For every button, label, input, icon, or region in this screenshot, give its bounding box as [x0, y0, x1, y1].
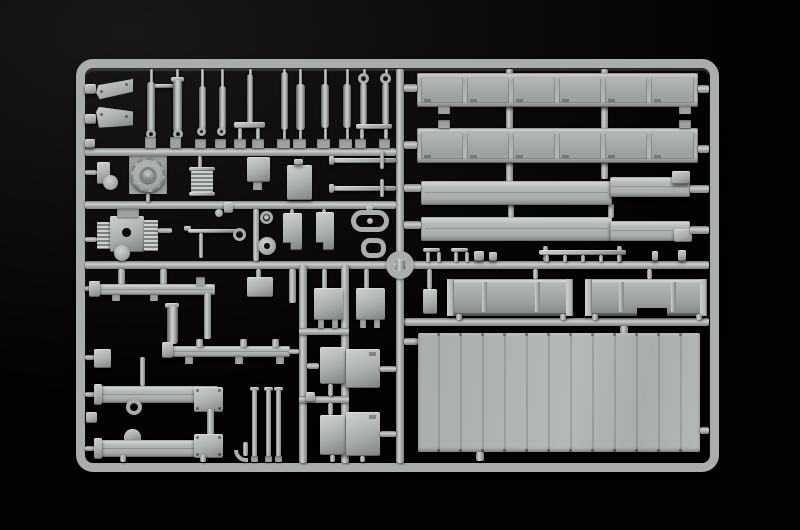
runner-tab	[85, 114, 96, 124]
part-thin-rod	[276, 390, 281, 458]
part-box-foot	[318, 319, 324, 328]
part-axle-end	[329, 156, 334, 165]
gate-connector	[608, 204, 614, 218]
part-cylinder	[173, 80, 182, 132]
part-beam-end-cap	[94, 438, 102, 459]
part-tank-pin	[367, 218, 373, 224]
part-cylinder	[321, 84, 329, 128]
part-small-block	[224, 202, 233, 213]
part-rod-eyelet	[217, 127, 226, 136]
gate-connector	[384, 129, 388, 139]
part-box-foot	[253, 182, 262, 190]
part-panel-small	[287, 165, 312, 200]
part-panel-hinge-tab	[679, 106, 691, 114]
part-small-panel	[423, 289, 437, 314]
gate-connector	[533, 269, 538, 279]
part-eye-rod	[360, 83, 367, 125]
part-small-block	[652, 251, 658, 261]
part-step-rail-foot	[563, 255, 567, 262]
part-frame-loop	[361, 238, 386, 258]
gate-connector	[427, 269, 432, 289]
sprue-photo	[0, 0, 800, 530]
gate-connector	[506, 105, 513, 130]
part-panel-hinge-tab	[438, 120, 450, 128]
gate-connector	[221, 69, 224, 87]
part-rail-foot	[276, 356, 284, 364]
gate-foot	[234, 139, 246, 148]
gate-connector	[560, 314, 566, 320]
part-cylinder	[281, 72, 288, 130]
part-step-rail-foot	[599, 255, 603, 262]
gate-connector	[201, 69, 204, 87]
part-box-foot	[332, 319, 338, 328]
gate-foot	[265, 456, 272, 462]
part-cab-panel-large	[346, 412, 380, 456]
gate-connector	[346, 69, 349, 85]
gate-connector	[150, 69, 153, 83]
part-winch-hole	[122, 228, 131, 237]
part-cab-panel	[320, 415, 345, 455]
part-axle-end	[329, 184, 334, 193]
gate-connector	[330, 455, 335, 462]
part-drop-side-panel-upper	[417, 73, 698, 107]
part-box-foot	[374, 319, 380, 328]
part-cylinder	[296, 84, 305, 130]
part-chassis-rail-end	[89, 281, 100, 297]
gate-foot	[252, 139, 264, 148]
center-locating-ring	[386, 251, 414, 279]
part-axle-pin	[380, 179, 384, 197]
gate-foot	[145, 137, 156, 148]
gate-connector	[404, 141, 417, 149]
runner-tab	[85, 139, 95, 148]
gate-foot	[275, 456, 282, 462]
gate-connector	[404, 338, 418, 345]
part-panel-hinge-tab	[438, 106, 450, 114]
part-pipe	[167, 306, 178, 344]
part-small-block	[474, 251, 484, 261]
part-cargo-floor	[418, 333, 700, 452]
gate-connector	[299, 69, 302, 85]
gate-connector	[328, 384, 333, 396]
part-stowage-box	[356, 288, 385, 320]
gate-connector	[85, 170, 97, 175]
gate-foot	[277, 139, 290, 148]
gate-connector	[698, 145, 709, 153]
part-rod	[219, 86, 226, 130]
gate-foot	[215, 139, 226, 148]
part-rail-foot	[185, 356, 193, 364]
part-step-rail-foot	[545, 255, 549, 262]
part-small-ball	[215, 209, 223, 217]
gate-connector	[508, 204, 514, 218]
part-winch-fins-left	[97, 222, 110, 249]
runner-horizontal-top-mid	[85, 148, 396, 156]
gate-connector	[404, 84, 417, 92]
gate-connector	[647, 269, 652, 279]
gate-connector	[120, 455, 126, 462]
part-gate-pin	[289, 269, 296, 303]
gate-connector	[324, 69, 327, 85]
part-cab-panel-large	[346, 349, 380, 388]
part-small-wheel-hub	[264, 215, 269, 220]
part-rod-eyelet	[197, 127, 206, 136]
part-drum-hub	[145, 172, 151, 178]
runner-horizontal-mid	[85, 201, 396, 209]
part-bed-rail-block	[672, 171, 690, 184]
part-drop-side-panel-lower	[417, 128, 698, 163]
part-side-trough	[447, 279, 573, 316]
part-clip-leg	[454, 252, 458, 262]
runner-tab	[86, 412, 97, 423]
part-rod	[199, 86, 206, 130]
part-pulley-hub	[264, 243, 270, 249]
part-winch-fins-right	[144, 220, 158, 251]
gate-connector	[85, 237, 97, 242]
part-thin-rod	[266, 390, 271, 458]
part-rail-foot	[150, 294, 158, 301]
gate-connector	[592, 314, 598, 320]
runner-tab	[85, 84, 96, 94]
part-beam-end-cap	[94, 384, 102, 405]
gate-foot	[251, 456, 258, 462]
gate-connector	[272, 339, 279, 347]
part-small-block	[678, 250, 686, 261]
gate-connector	[118, 269, 125, 285]
part-axle-shaft	[333, 158, 396, 163]
part-clip-leg	[465, 252, 469, 262]
part-rail-foot	[112, 294, 120, 301]
part-hook-tool-post	[199, 233, 203, 258]
gate-foot	[339, 139, 352, 148]
part-box-small	[94, 349, 111, 368]
gate-foot	[379, 139, 390, 148]
part-step-rail-foot	[617, 255, 621, 262]
gate-connector	[404, 184, 421, 192]
part-eye-rod	[382, 83, 389, 125]
gate-connector	[146, 194, 150, 202]
part-spool-flange	[189, 192, 215, 196]
gate-connector	[289, 349, 299, 354]
gate-connector	[196, 339, 203, 347]
gate-connector	[690, 226, 709, 234]
gate-foot	[170, 137, 181, 148]
part-thin-rod	[252, 390, 257, 458]
gate-connector	[364, 269, 369, 289]
part-cab-panel	[320, 347, 345, 384]
part-stowage-box	[314, 288, 343, 320]
gate-connector	[476, 452, 484, 461]
part-chassis-post	[204, 293, 211, 339]
gate-connector	[328, 403, 333, 415]
part-cylinder	[343, 84, 351, 128]
gate-connector	[506, 161, 513, 183]
gate-connector	[360, 129, 364, 139]
gate-connector	[200, 455, 206, 462]
part-clip-leg	[426, 252, 430, 262]
gate-foot	[293, 139, 306, 148]
gate-connector	[253, 209, 259, 261]
part-panel-tab	[294, 159, 303, 165]
part-small-block	[489, 252, 497, 261]
gate-connector	[140, 357, 145, 386]
part-rail-foot	[235, 356, 243, 364]
gate-connector	[380, 366, 396, 372]
part-side-trough	[585, 279, 707, 316]
gate-connector	[240, 339, 247, 347]
gate-foot	[195, 139, 206, 148]
gate-connector	[601, 161, 608, 179]
part-hook-tool-rod	[188, 229, 237, 233]
part-chassis-rail-end	[162, 342, 173, 358]
runner-cross-low-1	[299, 328, 349, 335]
part-bed-rail-upper	[421, 181, 612, 205]
part-runner-nub	[306, 392, 315, 402]
part-pulley-disc	[103, 175, 118, 190]
part-rail-bracket	[196, 277, 205, 285]
part-beam-plate	[194, 434, 223, 458]
part-box-plate	[247, 277, 273, 297]
gate-foot	[355, 139, 366, 148]
gate-connector	[456, 314, 462, 320]
part-step-rail-foot	[581, 255, 585, 262]
gate-connector	[322, 269, 327, 289]
gate-connector	[158, 228, 172, 233]
gate-foot	[317, 139, 330, 148]
gate-connector	[690, 185, 709, 193]
part-axle-shaft	[333, 186, 396, 191]
gate-connector	[696, 314, 702, 320]
gate-connector	[380, 431, 396, 437]
part-spool-ribs	[191, 171, 213, 192]
part-clip-leg	[437, 252, 441, 262]
gate-connector	[601, 105, 608, 130]
part-box-small	[247, 157, 270, 182]
part-cylinder	[147, 82, 155, 132]
gate-connector	[160, 269, 167, 285]
part-box-foot	[360, 319, 366, 328]
gate-connector	[404, 221, 421, 229]
runner-vertical-left-low	[299, 265, 307, 463]
gate-connector	[698, 85, 709, 93]
part-panel-hinge-tab	[679, 120, 691, 128]
part-axle-pin	[380, 151, 384, 169]
part-beam-ring-bracket	[126, 399, 142, 415]
part-stand-rod	[247, 74, 253, 125]
gate-connector	[307, 363, 319, 369]
part-winch-wheel	[114, 245, 130, 261]
part-bed-rail-lower	[421, 217, 612, 241]
part-hook-tool-hook	[233, 228, 246, 241]
runner-horizontal-right-low	[404, 318, 709, 326]
gate-connector	[360, 456, 365, 462]
part-winch-top-detail	[117, 209, 139, 217]
gate-connector	[700, 427, 709, 434]
